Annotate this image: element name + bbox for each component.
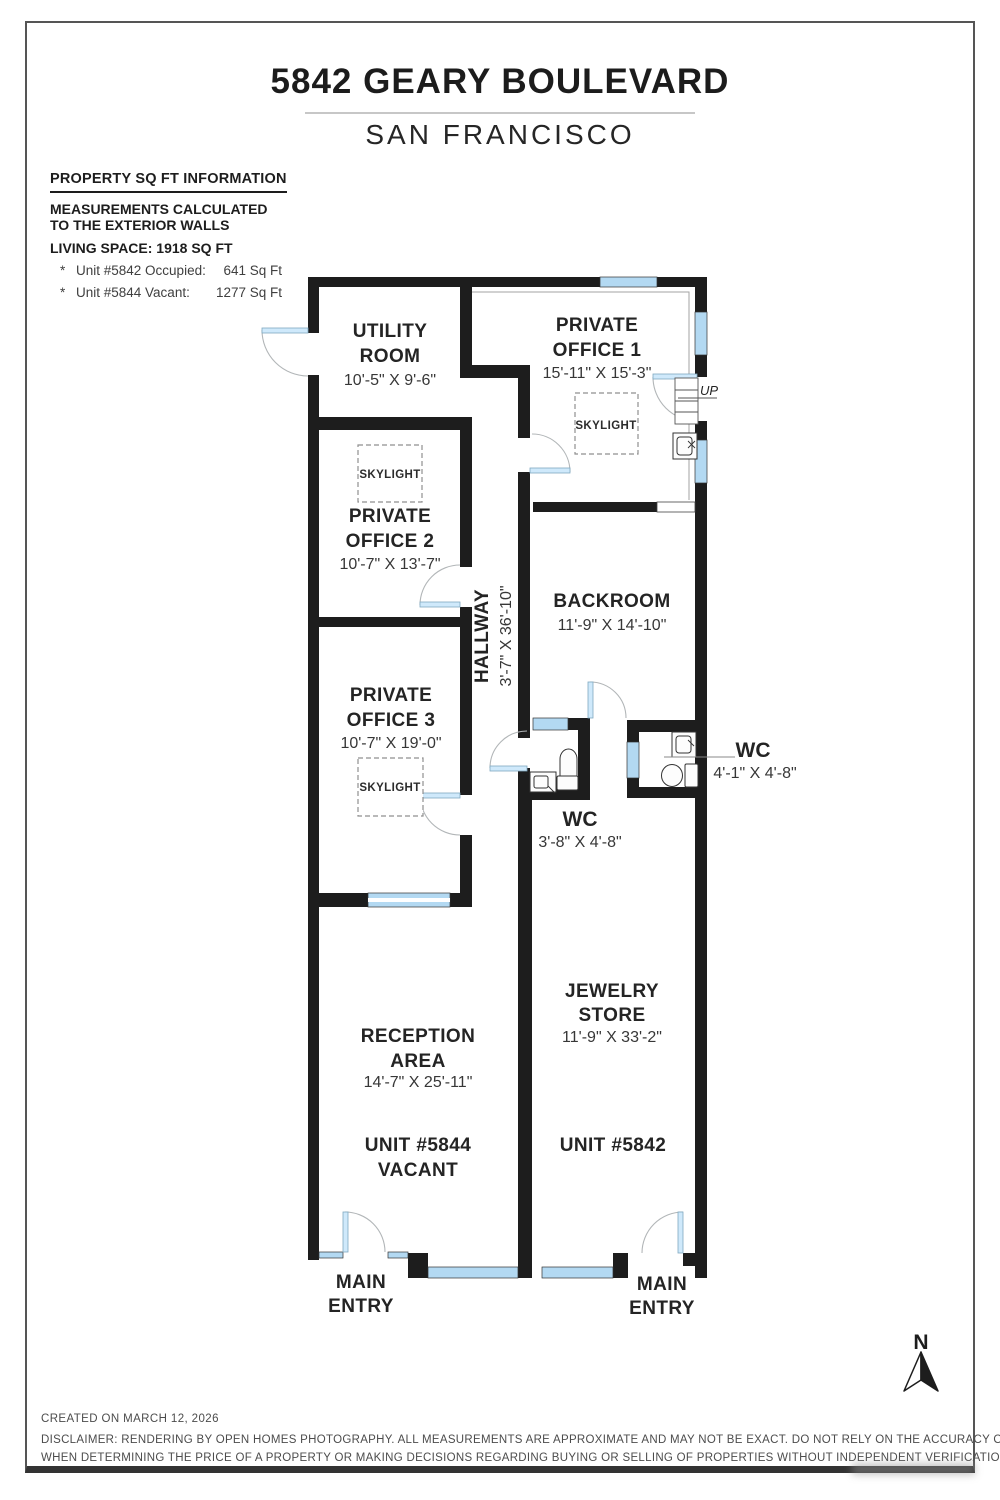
- svg-text:SKYLIGHT: SKYLIGHT: [575, 420, 636, 432]
- jewelry-store-name: JEWELRY: [565, 981, 659, 1002]
- door-utility: [262, 328, 308, 333]
- door-wc-vestibule: [490, 766, 527, 771]
- wc-left-name: WC: [563, 808, 598, 831]
- utility-room-dims: 10'-5" X 9'-6": [344, 372, 436, 389]
- main-entry-right-label: MAIN: [637, 1274, 687, 1295]
- hallway-name: HALLWAY: [472, 589, 493, 683]
- hallway-dims: 3'-7" X 36'-10": [498, 585, 515, 686]
- backroom-dims: 11'-9" X 14'-10": [558, 617, 667, 634]
- door-main-entry-left: [343, 1212, 348, 1252]
- floor-plan-drawing: UP SKYLIGHT SKYLIGHT SKYLIGHT: [0, 0, 1000, 1500]
- door-main-entry-right: [678, 1212, 683, 1253]
- storefront-window-right: [542, 1267, 613, 1278]
- office1-name: PRIVATE: [556, 315, 638, 336]
- jewelry-store-dims: 11'-9" X 33'-2": [562, 1029, 662, 1046]
- svg-text:SKYLIGHT: SKYLIGHT: [359, 782, 420, 794]
- unit-5844-tag: UNIT #5844: [365, 1135, 471, 1156]
- window-backroom: [533, 718, 568, 730]
- main-entry-left-label: MAIN: [336, 1272, 386, 1293]
- window-right-upper: [695, 312, 707, 355]
- north-arrow-icon: N: [904, 1331, 938, 1391]
- svg-text:ENTRY: ENTRY: [629, 1298, 695, 1319]
- fixtures: [530, 433, 698, 793]
- sink-wc-right: [672, 732, 696, 757]
- office1-dims: 15'-11" X 15'-3": [543, 365, 652, 382]
- office3-name: PRIVATE: [350, 685, 432, 706]
- floorplan-page: 5842 GEARY BOULEVARD SAN FRANCISCO PROPE…: [0, 0, 1000, 1500]
- created-date: CREATED ON MARCH 12, 2026: [41, 1413, 219, 1425]
- reception-dims: 14'-7" X 25'-11": [364, 1074, 473, 1091]
- office2-name: PRIVATE: [349, 506, 431, 527]
- unit-5844-vacant-tag: VACANT: [378, 1160, 458, 1181]
- svg-text:SKYLIGHT: SKYLIGHT: [359, 469, 420, 481]
- stairs-up: UP: [675, 378, 718, 424]
- toilet-wc-right: [662, 764, 699, 787]
- svg-text:OFFICE 1: OFFICE 1: [553, 340, 642, 361]
- svg-text:AREA: AREA: [390, 1051, 445, 1072]
- north-label: N: [913, 1331, 928, 1354]
- storefront-window-left: [428, 1267, 518, 1278]
- svg-text:ROOM: ROOM: [360, 346, 421, 367]
- window-front-left-2: [388, 1252, 408, 1258]
- window-front-left-1: [319, 1252, 343, 1258]
- svg-text:OFFICE 2: OFFICE 2: [346, 531, 435, 552]
- window-wc-right: [627, 742, 639, 778]
- office2-dims: 10'-7" X 13'-7": [339, 556, 440, 573]
- wc-right-dims: 4'-1" X 4'-8": [713, 765, 796, 782]
- opening-office1-backroom: [657, 502, 695, 512]
- window-top-wall: [600, 277, 657, 287]
- unit-5842-tag: UNIT #5842: [560, 1135, 666, 1156]
- svg-text:OFFICE 3: OFFICE 3: [347, 710, 436, 731]
- backroom-name: BACKROOM: [553, 591, 670, 612]
- door-office2: [420, 602, 460, 607]
- svg-text:STORE: STORE: [578, 1005, 645, 1026]
- sink-wc-left: [530, 772, 556, 793]
- toilet-wc-left: [557, 749, 578, 790]
- door-backroom: [588, 682, 593, 718]
- reception-name: RECEPTION: [361, 1026, 475, 1047]
- svg-text:ENTRY: ENTRY: [328, 1296, 394, 1317]
- sink-office1: [673, 433, 697, 459]
- door-office3: [420, 793, 460, 798]
- door-office1: [530, 468, 570, 473]
- office3-dims: 10'-7" X 19'-0": [340, 735, 441, 752]
- disclaimer-text: DISCLAIMER: RENDERING BY OPEN HOMES PHOT…: [41, 1432, 1000, 1467]
- up-label: UP: [700, 383, 718, 398]
- utility-room-name: UTILITY: [353, 321, 428, 342]
- wc-right-name: WC: [736, 739, 771, 762]
- photographer-watermark: [852, 1463, 975, 1475]
- wc-left-dims: 3'-8" X 4'-8": [538, 834, 621, 851]
